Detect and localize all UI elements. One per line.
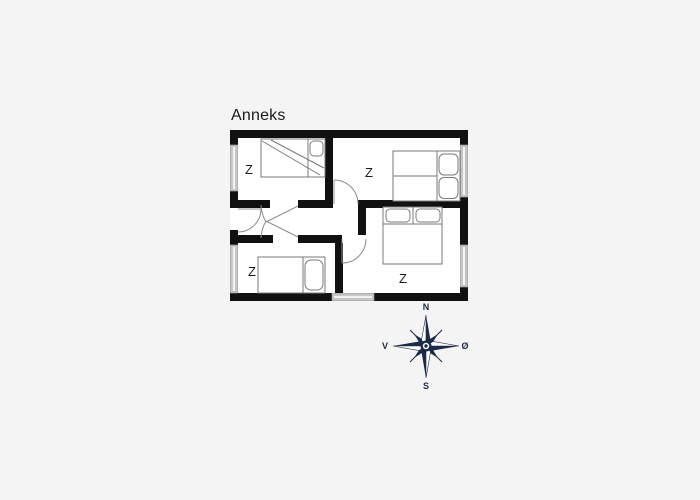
wall-left-segment-3: [230, 230, 238, 245]
double-bed-bottom-right: [383, 207, 442, 264]
window-left-lower: [231, 245, 238, 293]
floor-plan-drawing: Z Z Z Z: [0, 0, 700, 500]
single-bed-bottom-left: [258, 257, 325, 293]
compass-label-east: Ø: [461, 341, 468, 351]
hall-bottom-wall-1: [238, 235, 273, 243]
compass-label-west: V: [382, 341, 388, 351]
compass-label-north: N: [423, 302, 430, 312]
bunk-bed-top-left: [261, 139, 325, 177]
wall-top: [230, 130, 468, 138]
window-right-upper: [461, 145, 468, 197]
hall-end-wall: [358, 208, 366, 235]
window-left-upper: [231, 145, 238, 191]
wall-bottom-left-segment: [230, 293, 332, 301]
double-bed-top-right: [393, 151, 460, 201]
hall-top-wall-1: [238, 200, 270, 208]
room-label-bottom-right: Z: [399, 271, 407, 286]
wall-left-segment-1: [230, 138, 238, 145]
window-right-lower: [461, 245, 468, 287]
wall-right-segment-3: [460, 287, 468, 293]
compass-rose-icon: N S V Ø: [382, 302, 469, 391]
wall-right-segment-1: [460, 138, 468, 145]
compass-label-south: S: [423, 381, 429, 391]
hall-top-wall-2: [298, 200, 333, 208]
window-bottom: [332, 294, 374, 301]
floor-plan-page: Anneks: [0, 0, 700, 500]
wall-bottom-right-segment: [374, 293, 468, 301]
wall-left-segment-2: [230, 191, 238, 208]
wall-between-top-rooms: [325, 138, 333, 200]
wall-right-segment-2: [460, 197, 468, 245]
room-label-top-left: Z: [245, 162, 253, 177]
room-label-bottom-left: Z: [248, 264, 256, 279]
room-label-top-right: Z: [365, 165, 373, 180]
hall-bottom-wall-2: [298, 235, 342, 243]
